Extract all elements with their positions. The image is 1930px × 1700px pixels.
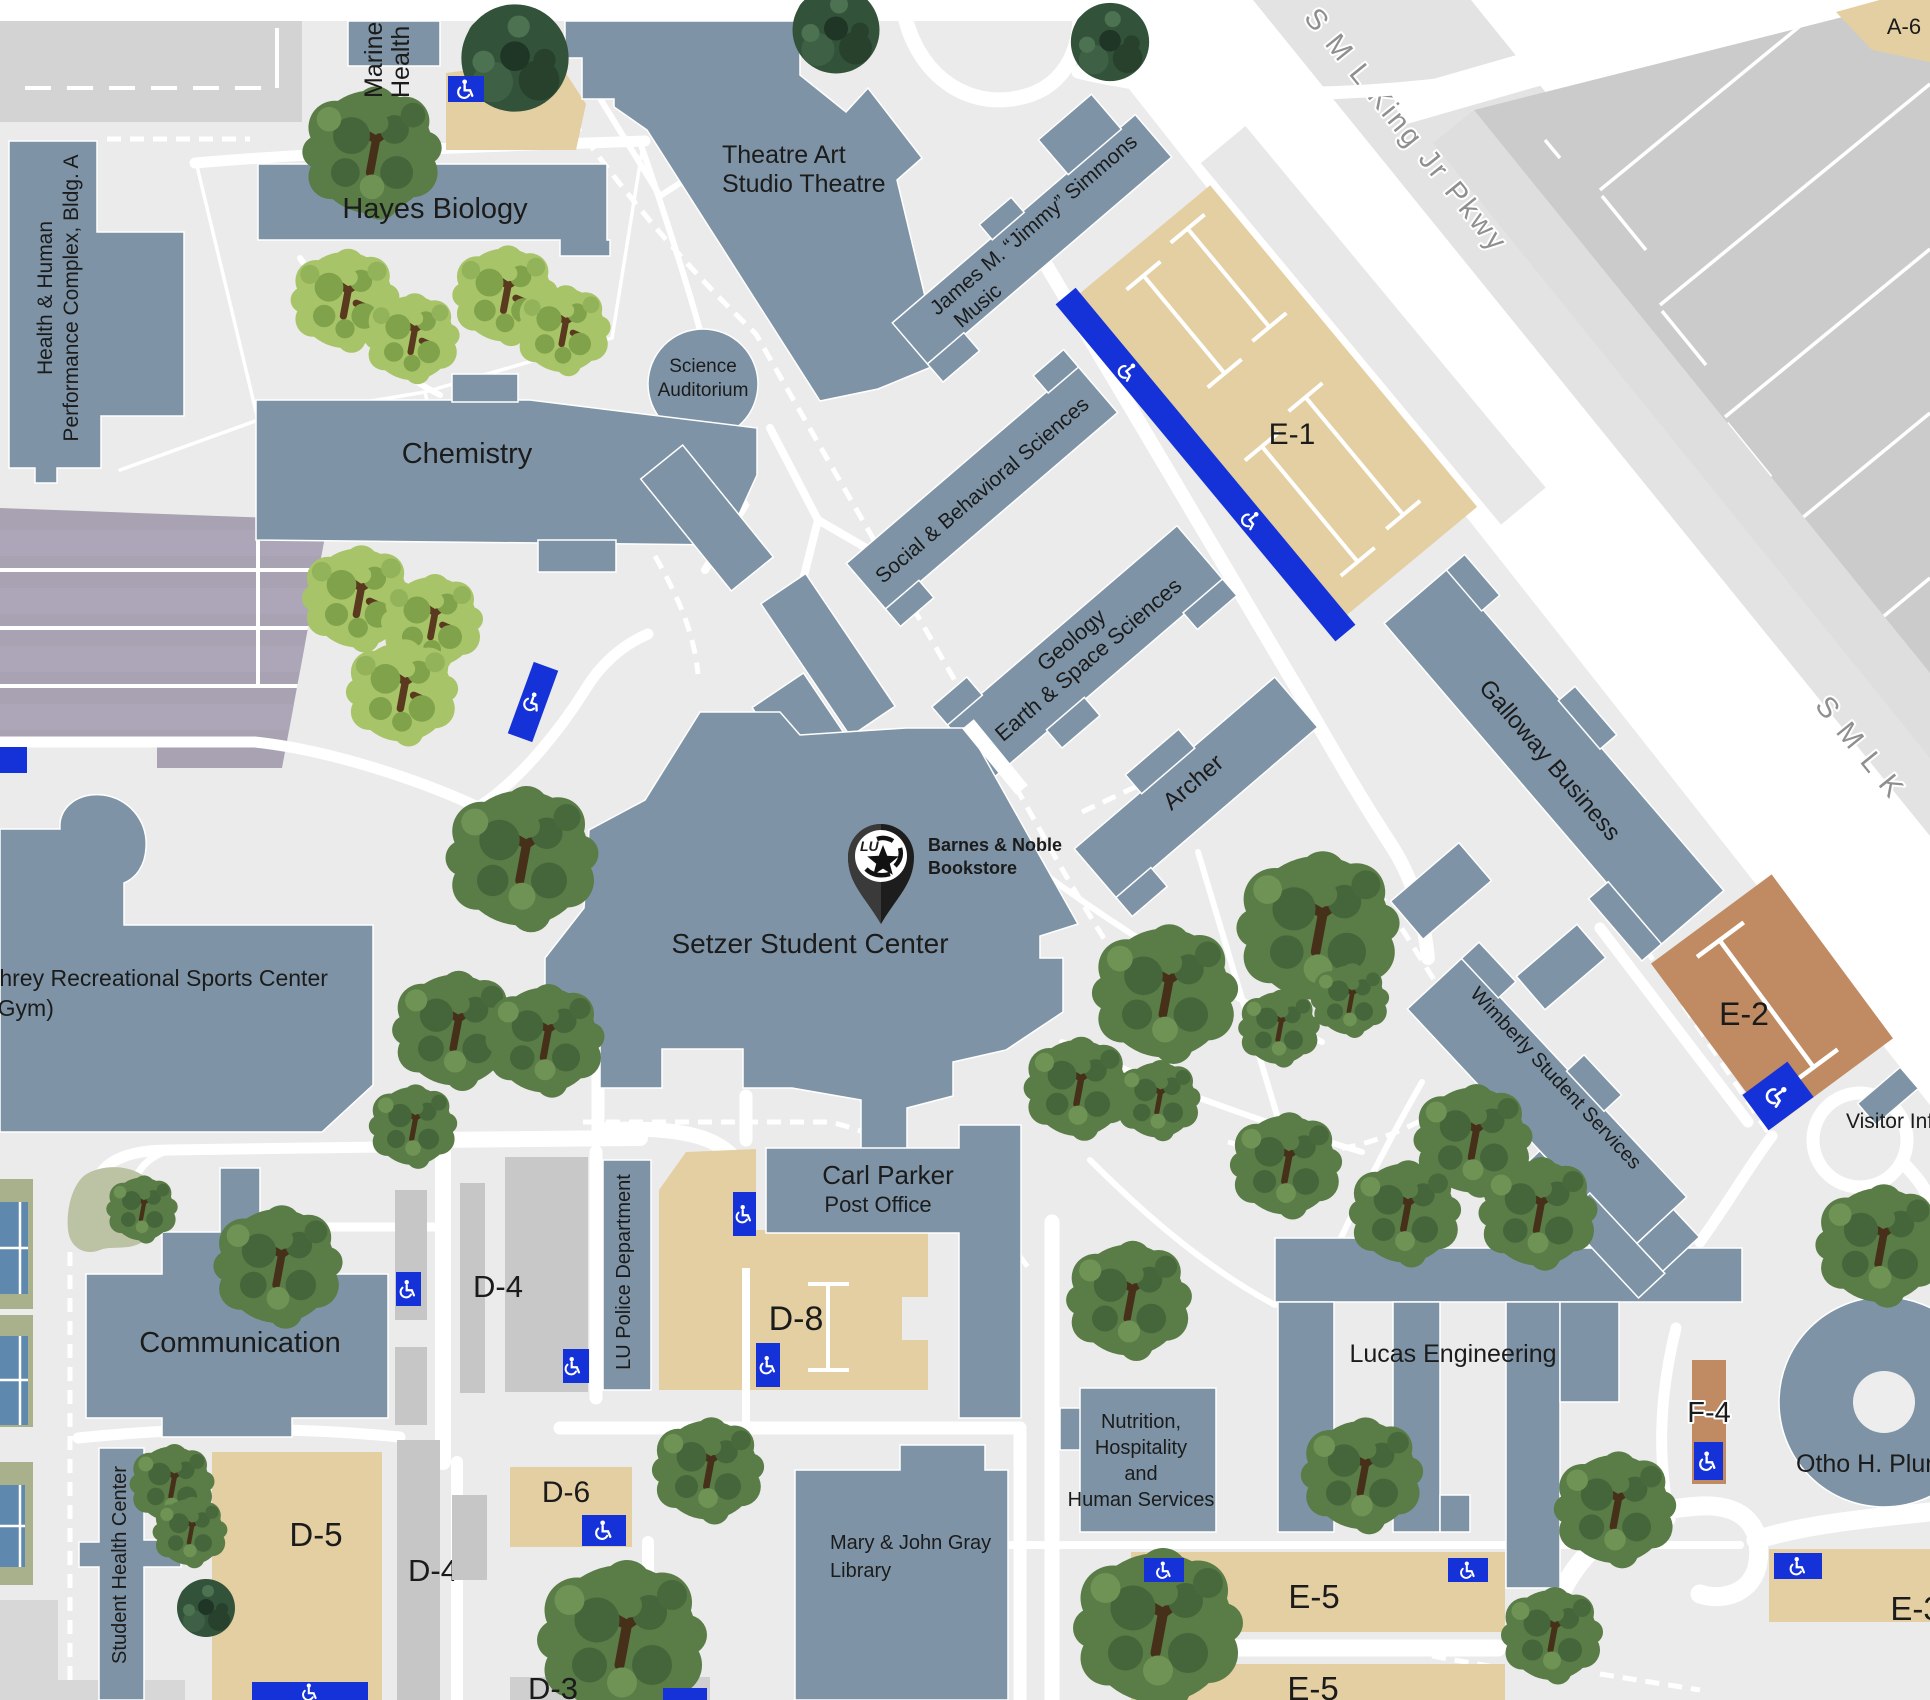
svg-text:Visitor Info: Visitor Info [1846, 1110, 1930, 1133]
svg-text:and: and [1124, 1463, 1157, 1485]
svg-text:Theatre Art: Theatre Art [722, 141, 846, 169]
svg-text:E-5: E-5 [1288, 1578, 1339, 1615]
svg-text:Nutrition,: Nutrition, [1101, 1411, 1181, 1433]
svg-text:D-5: D-5 [289, 1516, 342, 1553]
svg-text:F-4: F-4 [1687, 1397, 1731, 1429]
svg-text:Lucas Engineering: Lucas Engineering [1349, 1340, 1556, 1368]
svg-text:Hospitality: Hospitality [1095, 1437, 1187, 1459]
svg-text:Communication: Communication [139, 1327, 340, 1359]
svg-text:A-6: A-6 [1887, 14, 1921, 39]
svg-text:E-5: E-5 [1287, 1670, 1338, 1700]
svg-text:LU: LU [860, 838, 880, 854]
svg-text:D-8: D-8 [769, 1300, 824, 1338]
svg-text:Student Health Center: Student Health Center [109, 1466, 131, 1664]
svg-text:Barnes & Noble: Barnes & Noble [928, 835, 1062, 855]
svg-text:Studio Theatre: Studio Theatre [722, 170, 886, 198]
svg-text:LU Police Department: LU Police Department [613, 1174, 635, 1370]
svg-text:E-1: E-1 [1269, 418, 1316, 451]
svg-text:Marine: Marine [360, 22, 388, 98]
svg-text:Humphrey Recreational Sports C: Humphrey Recreational Sports Center [0, 965, 328, 991]
svg-text:D-4: D-4 [408, 1553, 458, 1588]
svg-text:Hayes Biology: Hayes Biology [342, 193, 528, 225]
svg-text:Post Office: Post Office [824, 1192, 931, 1217]
svg-text:(Gym): (Gym) [0, 995, 54, 1021]
svg-text:Library: Library [830, 1560, 891, 1582]
svg-text:D-3: D-3 [528, 1671, 578, 1700]
svg-text:Otho H. Plummer: Otho H. Plummer [1796, 1450, 1930, 1478]
svg-text:Mary & John Gray: Mary & John Gray [830, 1532, 991, 1554]
svg-text:Science: Science [669, 356, 737, 377]
svg-text:D-4: D-4 [473, 1269, 523, 1304]
svg-text:Health: Health [387, 26, 415, 98]
svg-text:E-2: E-2 [1719, 996, 1769, 1032]
svg-text:Auditorium: Auditorium [658, 380, 749, 401]
svg-text:Bookstore: Bookstore [928, 858, 1017, 878]
svg-text:D-6: D-6 [542, 1476, 590, 1509]
svg-text:E-3: E-3 [1890, 1590, 1930, 1627]
svg-text:Human Services: Human Services [1068, 1489, 1215, 1511]
svg-text:Chemistry: Chemistry [402, 438, 533, 470]
svg-text:Carl Parker: Carl Parker [822, 1160, 954, 1190]
svg-text:Health & Human: Health & Human [34, 221, 57, 375]
svg-text:Setzer Student Center: Setzer Student Center [671, 928, 948, 959]
svg-text:Performance Complex, Bldg. A: Performance Complex, Bldg. A [60, 154, 83, 441]
